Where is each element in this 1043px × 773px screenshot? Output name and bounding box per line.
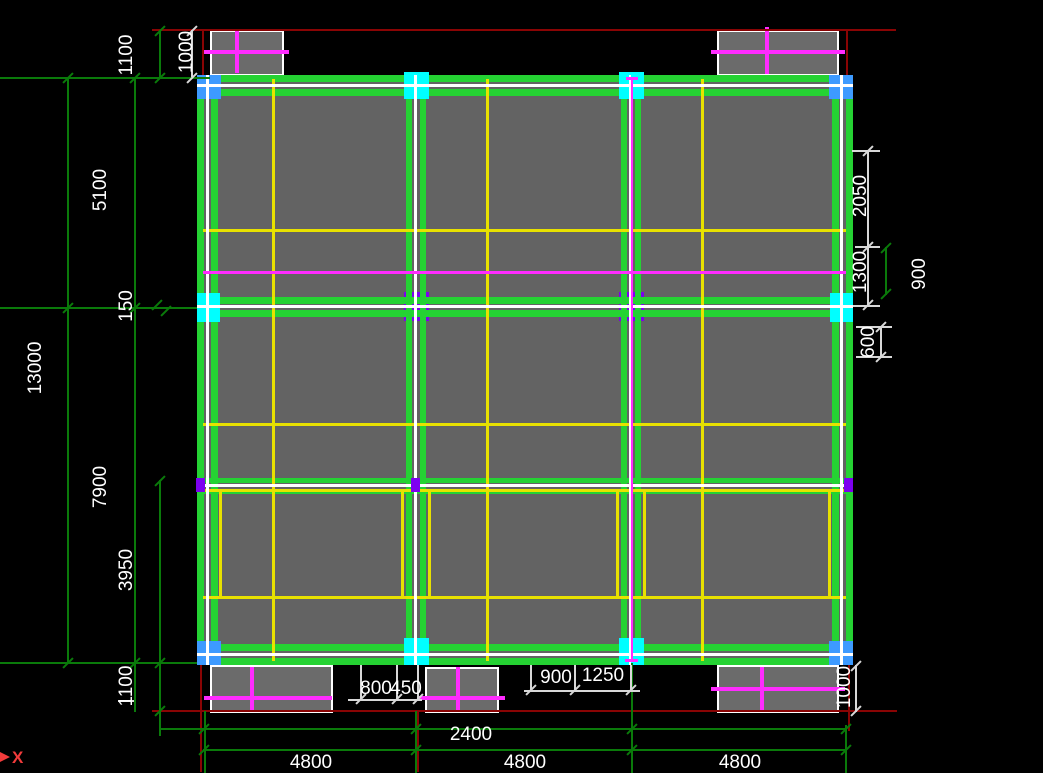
beam-line (197, 89, 853, 96)
beam-centerline (197, 653, 853, 656)
red-reference-line (417, 712, 419, 772)
grid-extension-line (204, 711, 206, 773)
beam-line (211, 75, 218, 665)
canopy-cross-line (204, 50, 289, 54)
dim-label-4800-left[interactable]: 4800 (279, 753, 343, 773)
secondary-beam-line (486, 79, 489, 661)
dim-label-5100[interactable]: 5100 (91, 158, 111, 222)
axis-arrow-icon (0, 752, 10, 762)
beam-line (197, 478, 853, 483)
dim-label-4800-middle[interactable]: 4800 (493, 753, 557, 773)
dimension-line (159, 30, 161, 77)
slab-edge-line (428, 490, 431, 597)
beam-centerline (197, 84, 853, 87)
slab-edge-line (219, 490, 222, 597)
dimension-line (159, 480, 161, 736)
dimension-line (203, 749, 846, 751)
dim-label-13000[interactable]: 13000 (26, 336, 46, 400)
red-reference-line (202, 29, 204, 75)
small-column-marker[interactable] (844, 478, 853, 492)
red-reference-line (152, 710, 897, 712)
canopy-cross-line (760, 667, 764, 710)
slab-edge-line (828, 490, 831, 597)
dim-label-7900[interactable]: 7900 (91, 455, 111, 519)
secondary-beam-line (272, 79, 275, 661)
small-column-marker[interactable] (196, 478, 205, 492)
cad-drawing-canvas[interactable]: 1100 1000 5100 150 13000 7900 3950 1100 … (0, 0, 1043, 773)
dim-label-900-right[interactable]: 900 (910, 242, 930, 306)
beam-centerline (206, 75, 209, 665)
canopy-cross-line (250, 667, 254, 712)
beam-centerline (197, 484, 853, 487)
canopy-cross-line (204, 696, 332, 700)
red-reference-line (200, 665, 202, 772)
beam-centerline (197, 305, 853, 308)
dim-label-1000-top-left[interactable]: 1000 (177, 20, 197, 84)
dim-label-2400[interactable]: 2400 (439, 725, 503, 745)
canopy-cross-line (456, 667, 460, 712)
dim-label-150[interactable]: 150 (117, 274, 137, 338)
grid-extension-line (415, 711, 417, 773)
dimension-line (67, 77, 69, 663)
dim-label-2050[interactable]: 2050 (851, 164, 871, 228)
secondary-beam-line (203, 489, 846, 492)
canopy-cross-line (711, 50, 845, 54)
dim-label-4800-right[interactable]: 4800 (708, 753, 772, 773)
dimension-line (880, 327, 882, 357)
magenta-tick (626, 77, 638, 80)
slab-edge-line (616, 490, 619, 597)
canopy-slab-bottom-left[interactable] (210, 665, 333, 713)
beam-centerline (414, 75, 417, 665)
beam-line (197, 310, 853, 317)
dim-label-1300[interactable]: 1300 (851, 240, 871, 304)
beam-line (197, 75, 204, 665)
dim-label-1100-bottom-left[interactable]: 1100 (117, 654, 137, 718)
red-reference-line (846, 29, 848, 75)
beam-line (197, 75, 853, 82)
secondary-beam-line (203, 229, 846, 232)
dim-label-1000-bottom-right[interactable]: 1000 (835, 655, 855, 719)
beam-line (635, 75, 641, 665)
dimension-line (134, 77, 136, 712)
dimension-line (524, 690, 640, 692)
dimension-line (160, 728, 846, 730)
slab-edge-line (401, 490, 404, 597)
beam-centerline (840, 75, 843, 665)
main-slab[interactable] (197, 75, 853, 665)
magenta-beam-line (203, 271, 846, 274)
dim-label-1250[interactable]: 1250 (571, 666, 635, 686)
dim-label-3950[interactable]: 3950 (117, 538, 137, 602)
beam-line (420, 75, 426, 665)
beam-line (197, 658, 853, 665)
dim-label-450[interactable]: 450 (374, 679, 438, 699)
red-reference-line (152, 29, 896, 31)
canopy-cross-line (711, 687, 845, 691)
canopy-cross-line (235, 30, 239, 73)
dimension-line (0, 662, 197, 664)
axis-x-label: X (12, 748, 23, 768)
dimension-line (885, 247, 887, 295)
secondary-beam-line (701, 79, 704, 661)
beam-line (621, 75, 627, 665)
small-column-marker[interactable] (411, 478, 420, 492)
canopy-cross-line (765, 27, 769, 74)
beam-line (406, 75, 412, 665)
beam-line (197, 644, 853, 651)
magenta-tick (625, 659, 638, 662)
dim-label-600[interactable]: 600 (859, 310, 879, 374)
secondary-beam-line (203, 596, 846, 599)
magenta-beam-line (631, 78, 633, 662)
dim-label-1100-top-left[interactable]: 1100 (117, 23, 137, 87)
slab-edge-line (643, 490, 646, 597)
beam-line (832, 75, 839, 665)
beam-line (197, 297, 853, 304)
secondary-beam-line (203, 423, 846, 426)
